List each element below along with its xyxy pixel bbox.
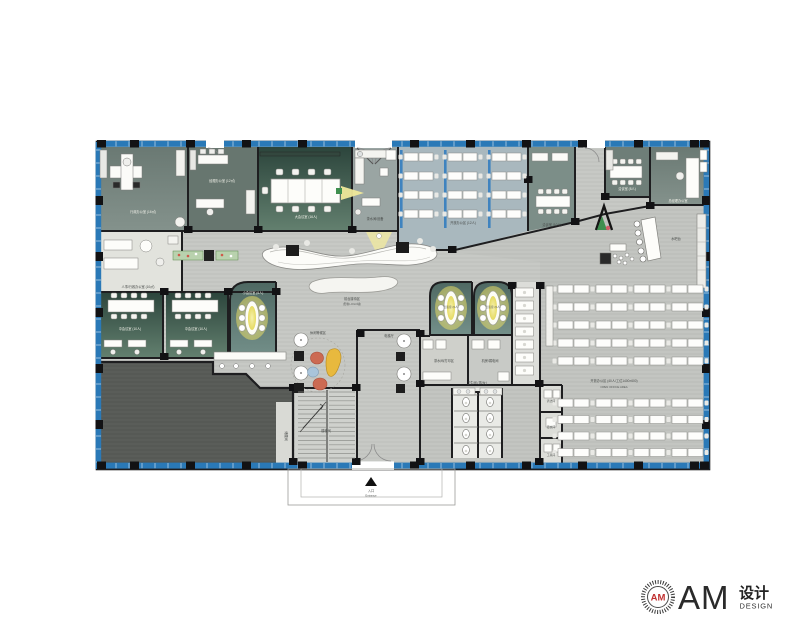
stairs-floor bbox=[295, 388, 357, 464]
sink-basin bbox=[493, 390, 497, 394]
wall-block bbox=[508, 282, 517, 289]
chair bbox=[705, 450, 709, 455]
label-meet-f: 洽谈室 (10人) bbox=[542, 222, 561, 227]
desk bbox=[688, 357, 703, 365]
desk bbox=[558, 303, 573, 311]
chair bbox=[443, 212, 447, 217]
desk bbox=[634, 339, 649, 347]
desk bbox=[672, 432, 687, 440]
equipment-dot bbox=[523, 343, 526, 346]
label-clean-1: 清洁间 bbox=[547, 399, 556, 403]
label-restroom: 卫生间 (男/女) bbox=[467, 380, 487, 385]
desk bbox=[558, 399, 573, 407]
desk bbox=[574, 449, 589, 457]
desk bbox=[596, 339, 611, 347]
column bbox=[690, 462, 699, 470]
logo-initials: AM bbox=[678, 579, 730, 616]
equipment-dot bbox=[523, 317, 526, 320]
desk bbox=[650, 321, 665, 329]
toilet-seat bbox=[489, 434, 492, 437]
desk bbox=[574, 432, 589, 440]
wall-block bbox=[416, 458, 425, 465]
desk bbox=[404, 172, 418, 180]
desk bbox=[634, 285, 649, 293]
desk bbox=[612, 321, 627, 329]
desk bbox=[558, 357, 573, 365]
chair bbox=[591, 359, 595, 364]
desk bbox=[650, 432, 665, 440]
desk bbox=[574, 399, 589, 407]
desk bbox=[463, 153, 477, 161]
toilet-seat bbox=[465, 434, 468, 437]
equipment-dot bbox=[523, 291, 526, 294]
chair bbox=[629, 450, 633, 455]
desk bbox=[492, 172, 506, 180]
chair bbox=[399, 174, 403, 179]
desk bbox=[492, 191, 506, 199]
desk bbox=[650, 416, 665, 424]
label-reception-2: (形象LOGO墙) bbox=[343, 302, 361, 306]
desk bbox=[672, 321, 687, 329]
column bbox=[242, 140, 251, 148]
desk bbox=[596, 416, 611, 424]
equipment-dot bbox=[523, 356, 526, 359]
chair bbox=[553, 434, 557, 439]
desk bbox=[596, 321, 611, 329]
label-stairs: 楼梯间 bbox=[321, 428, 331, 433]
label-meet-2: 中会议室 (10人) bbox=[185, 326, 208, 331]
wall-block bbox=[160, 353, 169, 360]
toilet-seat bbox=[489, 450, 492, 453]
chair bbox=[591, 323, 595, 328]
desk bbox=[596, 449, 611, 457]
chair bbox=[443, 174, 447, 179]
sink-basin bbox=[457, 390, 461, 394]
chair bbox=[591, 401, 595, 406]
chair bbox=[705, 341, 709, 346]
chair bbox=[480, 295, 486, 301]
chair bbox=[591, 287, 595, 292]
desk bbox=[492, 153, 506, 161]
desk bbox=[558, 321, 573, 329]
chair bbox=[500, 315, 506, 321]
chair bbox=[435, 193, 439, 198]
desk bbox=[650, 285, 665, 293]
desk bbox=[596, 357, 611, 365]
label-exec-office: 行政办公室 (16㎡) bbox=[130, 209, 156, 214]
desk bbox=[419, 210, 433, 218]
desk bbox=[419, 172, 433, 180]
desk bbox=[596, 432, 611, 440]
column bbox=[186, 462, 195, 470]
equipment-dot bbox=[523, 369, 526, 372]
desk bbox=[404, 210, 418, 218]
toilet-seat bbox=[465, 450, 468, 453]
top-left-door bbox=[206, 140, 224, 148]
desk bbox=[463, 191, 477, 199]
chair bbox=[479, 174, 483, 179]
desk bbox=[448, 191, 462, 199]
desk bbox=[688, 321, 703, 329]
chair bbox=[667, 287, 671, 292]
chair bbox=[667, 401, 671, 406]
chair bbox=[553, 417, 557, 422]
exec-office-floor bbox=[99, 147, 188, 231]
chair bbox=[487, 174, 491, 179]
desk bbox=[612, 399, 627, 407]
label-corner-office: 总经理办公室 bbox=[668, 198, 687, 203]
label-pantry-top: 茶水间/设备 bbox=[367, 216, 385, 221]
label-office-b: 经理办公室 (12㎡) bbox=[209, 178, 235, 183]
corner-column bbox=[97, 140, 106, 148]
chair bbox=[705, 434, 709, 439]
column bbox=[186, 140, 195, 148]
desk bbox=[688, 399, 703, 407]
desk bbox=[612, 339, 627, 347]
chair bbox=[629, 323, 633, 328]
chair bbox=[458, 305, 464, 311]
column bbox=[130, 140, 139, 148]
label-glow-b: 洽谈室 (6人) bbox=[485, 305, 500, 309]
corner-column bbox=[700, 140, 709, 148]
desk bbox=[688, 449, 703, 457]
column bbox=[634, 462, 643, 470]
chair bbox=[435, 174, 439, 179]
wall-block bbox=[601, 193, 610, 200]
conference-table bbox=[271, 179, 340, 203]
desk bbox=[404, 153, 418, 161]
wall-block bbox=[448, 246, 457, 253]
chair bbox=[667, 434, 671, 439]
desk bbox=[596, 399, 611, 407]
column bbox=[466, 140, 475, 148]
chair bbox=[399, 212, 403, 217]
chair bbox=[239, 325, 245, 331]
chair bbox=[487, 155, 491, 160]
desk bbox=[612, 449, 627, 457]
desk bbox=[672, 449, 687, 457]
brand-logo: AM AM 设计 DESIGN bbox=[643, 579, 773, 616]
desk bbox=[596, 303, 611, 311]
toilet-seat bbox=[465, 402, 468, 405]
wall-block bbox=[646, 202, 655, 209]
desk bbox=[672, 416, 687, 424]
main-top-door bbox=[355, 140, 392, 148]
wall-block bbox=[571, 218, 580, 225]
wall-block bbox=[416, 330, 425, 337]
desk bbox=[463, 172, 477, 180]
label-clean-2: 更衣间 bbox=[547, 425, 556, 429]
sink-counter bbox=[480, 388, 502, 395]
chair bbox=[553, 359, 557, 364]
wall-block bbox=[536, 282, 545, 289]
column bbox=[578, 140, 587, 148]
logo-badge-text: AM bbox=[651, 593, 666, 604]
desk bbox=[419, 191, 433, 199]
label-conference: 大会议室 (16人) bbox=[295, 214, 318, 219]
label-open-top: 开放办公区 (12人) bbox=[450, 220, 476, 225]
chair bbox=[239, 305, 245, 311]
chair bbox=[443, 155, 447, 160]
desk bbox=[612, 303, 627, 311]
chair bbox=[629, 417, 633, 422]
desk bbox=[492, 210, 506, 218]
label-storage: 储藏间 bbox=[284, 431, 289, 441]
chair bbox=[667, 305, 671, 310]
column bbox=[130, 462, 139, 470]
desk bbox=[463, 210, 477, 218]
chair bbox=[523, 155, 527, 160]
desk bbox=[507, 210, 521, 218]
chair bbox=[705, 323, 709, 328]
desk bbox=[419, 153, 433, 161]
chair bbox=[480, 315, 486, 321]
wall-block bbox=[348, 226, 357, 233]
column bbox=[634, 140, 643, 148]
chair bbox=[705, 287, 709, 292]
chair bbox=[629, 341, 633, 346]
entrance-arrow bbox=[365, 477, 377, 486]
wall-block bbox=[224, 288, 233, 295]
chair bbox=[705, 359, 709, 364]
column bbox=[690, 140, 699, 148]
chair bbox=[259, 305, 265, 311]
column bbox=[298, 462, 307, 470]
toilet-seat bbox=[465, 418, 468, 421]
sink-counter bbox=[453, 388, 475, 395]
column bbox=[410, 140, 419, 148]
chair bbox=[438, 315, 444, 321]
chair bbox=[239, 315, 245, 321]
label-reception-1: 前台接待区 bbox=[344, 296, 361, 301]
column bbox=[242, 462, 251, 470]
column bbox=[298, 140, 307, 148]
chair bbox=[479, 155, 483, 160]
chair bbox=[500, 295, 506, 301]
desk bbox=[650, 449, 665, 457]
chair bbox=[523, 212, 527, 217]
label-meet-right: 洽谈室 (8人) bbox=[618, 186, 636, 191]
desk bbox=[634, 357, 649, 365]
desk bbox=[558, 285, 573, 293]
label-lounge: 休闲等候区 bbox=[310, 330, 327, 335]
chair bbox=[591, 341, 595, 346]
desk bbox=[672, 399, 687, 407]
desk bbox=[688, 303, 703, 311]
desk bbox=[574, 416, 589, 424]
desk bbox=[596, 285, 611, 293]
chair bbox=[479, 212, 483, 217]
desk bbox=[650, 357, 665, 365]
media-wall bbox=[260, 152, 340, 156]
label-server: 机房/弱电间 bbox=[482, 358, 499, 363]
chair bbox=[259, 325, 265, 331]
desk bbox=[507, 172, 521, 180]
label-bar: 水吧台 bbox=[671, 236, 681, 241]
desk bbox=[634, 432, 649, 440]
chair bbox=[591, 450, 595, 455]
desk bbox=[650, 339, 665, 347]
desk bbox=[574, 303, 589, 311]
desk bbox=[672, 285, 687, 293]
desk bbox=[612, 285, 627, 293]
chair bbox=[591, 434, 595, 439]
chair bbox=[523, 193, 527, 198]
desk bbox=[634, 321, 649, 329]
chair bbox=[458, 295, 464, 301]
equipment-dot bbox=[523, 330, 526, 333]
wall-block bbox=[160, 288, 169, 295]
column bbox=[96, 252, 104, 261]
toilet-seat bbox=[489, 418, 492, 421]
wall-block bbox=[356, 330, 365, 337]
wall-block bbox=[352, 384, 361, 391]
wall-block bbox=[254, 226, 263, 233]
label-elevator: 电梯厅 bbox=[384, 333, 394, 338]
desk bbox=[574, 321, 589, 329]
chair bbox=[443, 193, 447, 198]
desk bbox=[558, 449, 573, 457]
desk bbox=[612, 357, 627, 365]
label-glow-a: 洽谈室 (6人) bbox=[443, 305, 458, 309]
equipment-dot bbox=[523, 304, 526, 307]
chair bbox=[705, 305, 709, 310]
desk bbox=[688, 416, 703, 424]
wall-block bbox=[416, 380, 425, 387]
chair bbox=[667, 323, 671, 328]
desk bbox=[448, 172, 462, 180]
wall-block bbox=[535, 458, 544, 465]
desk bbox=[574, 285, 589, 293]
wall-block bbox=[289, 458, 298, 465]
desk bbox=[404, 191, 418, 199]
desk bbox=[650, 303, 665, 311]
chair bbox=[629, 305, 633, 310]
column bbox=[702, 364, 710, 373]
desk bbox=[688, 285, 703, 293]
column bbox=[522, 140, 531, 148]
label-clean-3: 工具间 bbox=[547, 453, 556, 457]
floorplan-page: 行政办公室 (16㎡) 经理办公室 (12㎡) 大会议室 (16人) 茶水间/设… bbox=[0, 0, 800, 627]
desk bbox=[558, 416, 573, 424]
logo-cn: 设计 bbox=[739, 584, 769, 602]
floorplan-drawing: 行政办公室 (16㎡) 经理办公室 (12㎡) 大会议室 (16人) 茶水间/设… bbox=[0, 0, 800, 627]
desk bbox=[448, 153, 462, 161]
equipment-strip bbox=[516, 288, 534, 375]
chair bbox=[629, 287, 633, 292]
chair bbox=[591, 305, 595, 310]
column bbox=[702, 196, 710, 205]
corner-column bbox=[97, 462, 106, 470]
label-entrance-cn: 入口 bbox=[368, 489, 374, 493]
cabinet-strip bbox=[546, 286, 553, 346]
desk bbox=[634, 399, 649, 407]
label-entrance-en: Entrance bbox=[365, 494, 377, 498]
label-open-main-1: 开放办公区 (40人/工位1400×600) bbox=[590, 378, 637, 383]
chair bbox=[435, 212, 439, 217]
desk bbox=[650, 399, 665, 407]
entrance-canopy: 入口 Entrance bbox=[288, 469, 455, 505]
desk bbox=[507, 191, 521, 199]
chair bbox=[500, 305, 506, 311]
chair bbox=[487, 212, 491, 217]
logo-en: DESIGN bbox=[740, 602, 774, 611]
chair bbox=[667, 341, 671, 346]
wall-block bbox=[184, 226, 193, 233]
wall-block bbox=[352, 458, 361, 465]
label-round-room: 小会议室 (6人) bbox=[243, 290, 264, 295]
label-office-h1: 人事/行政办公室 (10㎡) bbox=[122, 284, 155, 289]
desk bbox=[634, 303, 649, 311]
chair bbox=[629, 434, 633, 439]
sink-basin bbox=[466, 390, 470, 394]
table-light bbox=[248, 306, 256, 330]
corridor-planters bbox=[173, 250, 238, 261]
chair bbox=[667, 417, 671, 422]
label-pantry-mid: 茶水间/打印区 bbox=[434, 358, 455, 363]
desk bbox=[634, 449, 649, 457]
chair bbox=[629, 401, 633, 406]
desk bbox=[612, 432, 627, 440]
chair bbox=[438, 295, 444, 301]
chair bbox=[705, 417, 709, 422]
chair bbox=[435, 155, 439, 160]
corner-column bbox=[700, 462, 709, 470]
column bbox=[96, 196, 104, 205]
desk bbox=[688, 339, 703, 347]
label-meet-1: 中会议室 (10人) bbox=[119, 326, 142, 331]
chair bbox=[259, 315, 265, 321]
chair bbox=[523, 174, 527, 179]
wall-block bbox=[272, 288, 281, 295]
column bbox=[96, 420, 104, 429]
label-open-main-2: OPEN OFFICE AREA bbox=[600, 385, 627, 389]
column bbox=[466, 462, 475, 470]
column bbox=[578, 462, 587, 470]
desk bbox=[672, 303, 687, 311]
chair bbox=[479, 193, 483, 198]
desk bbox=[688, 432, 703, 440]
column bbox=[96, 364, 104, 373]
desk bbox=[634, 416, 649, 424]
desk bbox=[574, 357, 589, 365]
chair bbox=[667, 450, 671, 455]
wall-block bbox=[535, 380, 544, 387]
desk bbox=[612, 416, 627, 424]
chair bbox=[458, 315, 464, 321]
desk bbox=[448, 210, 462, 218]
desk bbox=[507, 153, 521, 161]
desk bbox=[558, 339, 573, 347]
sink-basin bbox=[484, 390, 488, 394]
desk bbox=[574, 339, 589, 347]
chair bbox=[487, 193, 491, 198]
chair bbox=[705, 401, 709, 406]
desk bbox=[672, 357, 687, 365]
column bbox=[522, 462, 531, 470]
desk bbox=[558, 432, 573, 440]
toilet-seat bbox=[489, 402, 492, 405]
chair bbox=[667, 359, 671, 364]
column bbox=[96, 308, 104, 317]
chair bbox=[399, 193, 403, 198]
chair bbox=[399, 155, 403, 160]
chair bbox=[591, 417, 595, 422]
chair bbox=[629, 359, 633, 364]
desk bbox=[672, 339, 687, 347]
